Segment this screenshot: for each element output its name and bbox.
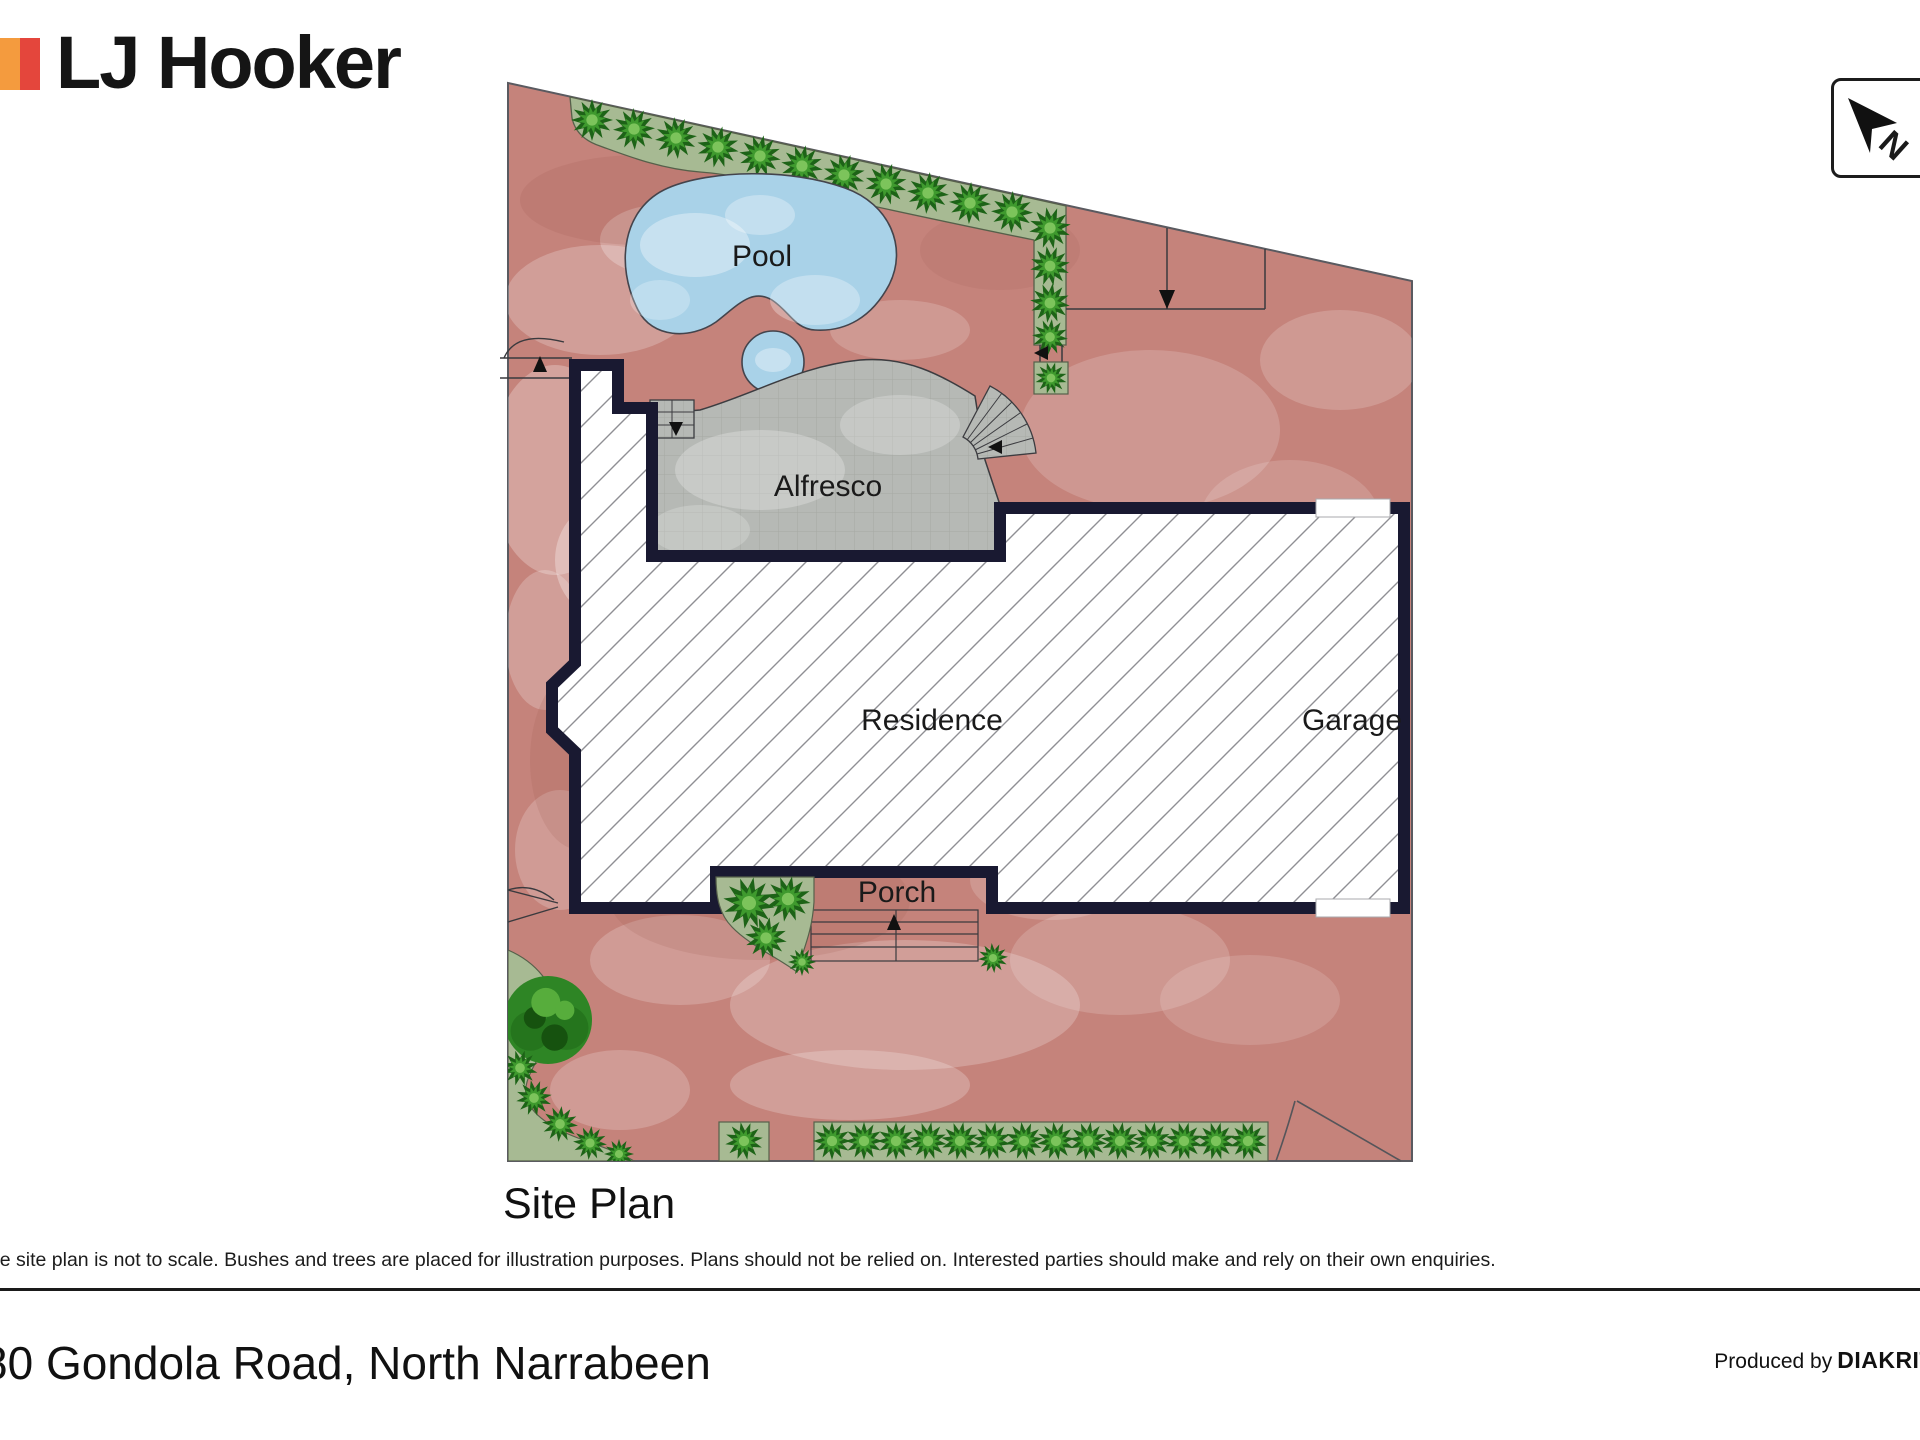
porch-label: Porch [858, 876, 936, 909]
alfresco-label: Alfresco [774, 470, 882, 503]
produced-by-label: Produced by [1714, 1350, 1832, 1373]
producer-name: DIAKRIT [1832, 1347, 1920, 1373]
garage-label: Garage [1302, 704, 1402, 737]
site-plan: Pool Alfresco Residence Gar [0, 0, 1920, 1440]
property-address: 80 Gondola Road, North Narrabeen [0, 1336, 711, 1390]
garage-door-opening-bottom [1316, 899, 1390, 917]
disclaimer-text: The site plan is not to scale. Bushes an… [0, 1249, 1496, 1272]
produced-by: Produced byDIAKRIT [1714, 1347, 1920, 1374]
footer-divider [0, 1288, 1920, 1291]
garage-door-opening-top [1316, 499, 1390, 517]
stair-planter [1031, 358, 1070, 397]
residence-label: Residence [861, 704, 1003, 737]
pool-label: Pool [732, 240, 792, 273]
tree-icon [504, 976, 592, 1064]
plan-title: Site Plan [503, 1180, 675, 1229]
